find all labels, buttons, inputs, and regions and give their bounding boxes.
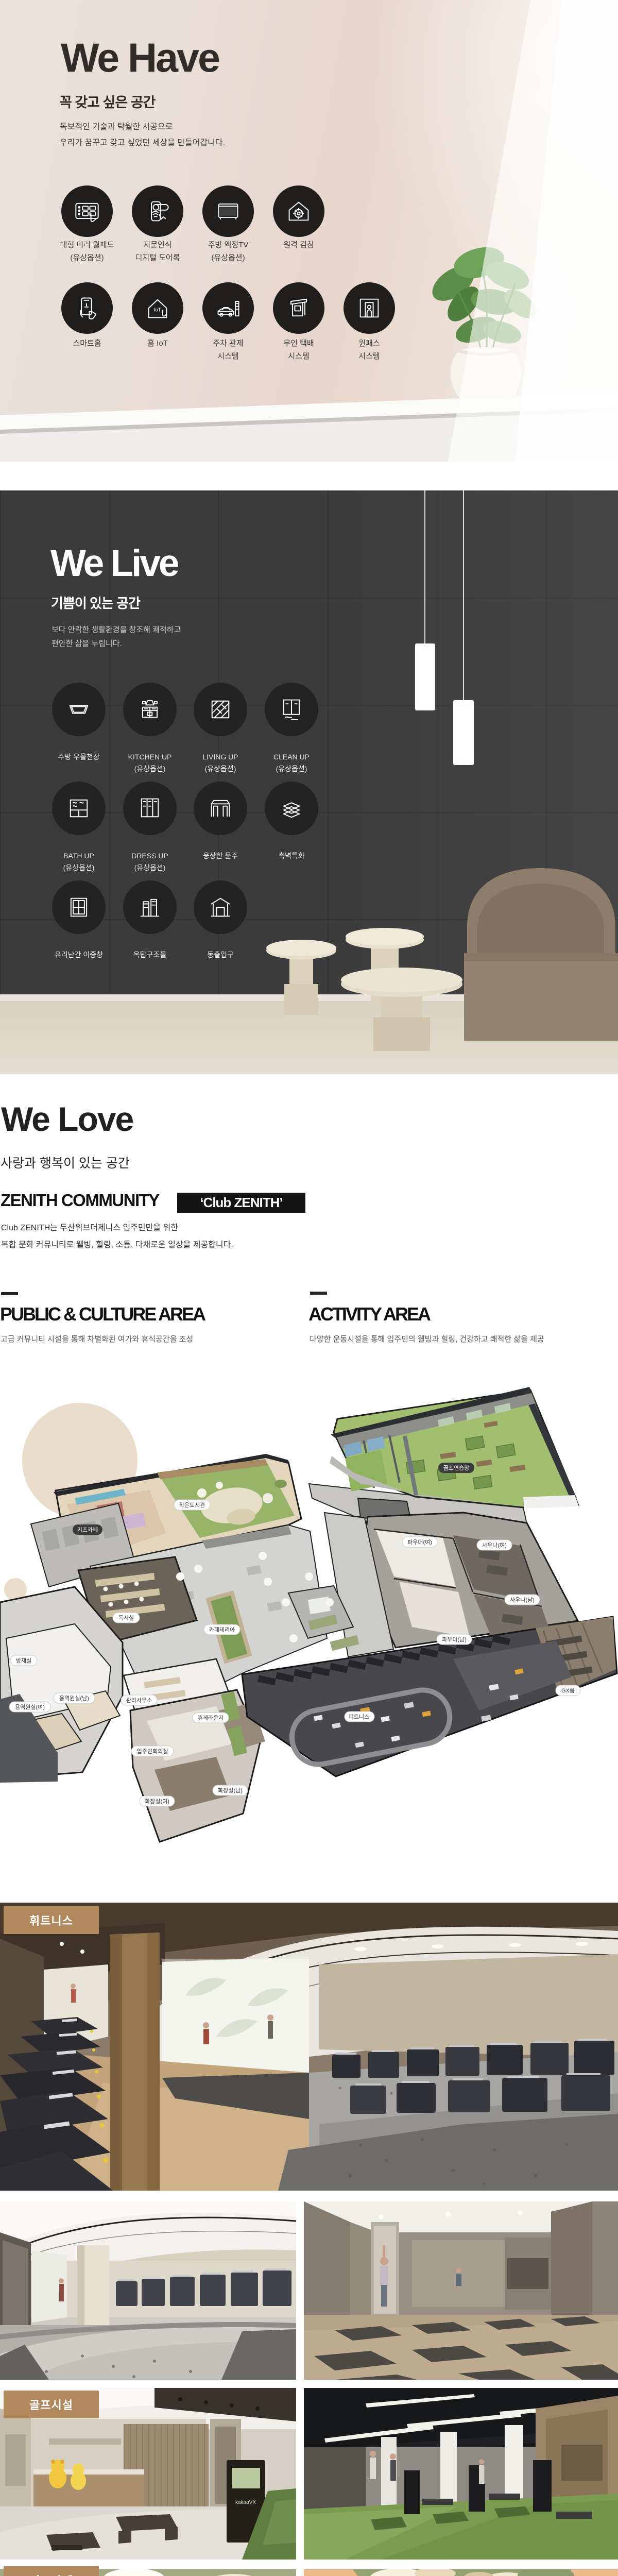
svg-text:파우더(남): 파우더(남) [442, 1636, 467, 1643]
svg-text:작은도서관: 작은도서관 [179, 1502, 205, 1509]
svg-text:입주민회의실: 입주민회의실 [137, 1748, 168, 1755]
svg-text:독서실: 독서실 [118, 1615, 134, 1621]
svg-text:파우더(여): 파우더(여) [407, 1539, 432, 1546]
svg-text:화장실(여): 화장실(여) [145, 1798, 169, 1805]
svg-text:방재실: 방재실 [16, 1657, 31, 1664]
svg-text:휴게라운지: 휴게라운지 [198, 1715, 224, 1721]
svg-text:화장실(남): 화장실(남) [218, 1787, 243, 1794]
svg-text:용역원실(여): 용역원실(여) [15, 1704, 45, 1710]
svg-text:골프연습장: 골프연습장 [443, 1465, 470, 1471]
svg-text:용역원실(남): 용역원실(남) [59, 1695, 89, 1702]
svg-text:kakaoVX: kakaoVX [235, 2500, 256, 2505]
svg-text:카페테리아: 카페테리아 [209, 1626, 235, 1633]
svg-text:피트니스: 피트니스 [349, 1714, 369, 1720]
svg-text:사우나(여): 사우나(여) [482, 1542, 507, 1549]
svg-text:관리사무소: 관리사무소 [126, 1697, 152, 1704]
svg-text:키즈카페: 키즈카페 [77, 1527, 98, 1533]
svg-text:사우나(남): 사우나(남) [510, 1597, 535, 1603]
svg-text:GX룸: GX룸 [561, 1687, 575, 1694]
